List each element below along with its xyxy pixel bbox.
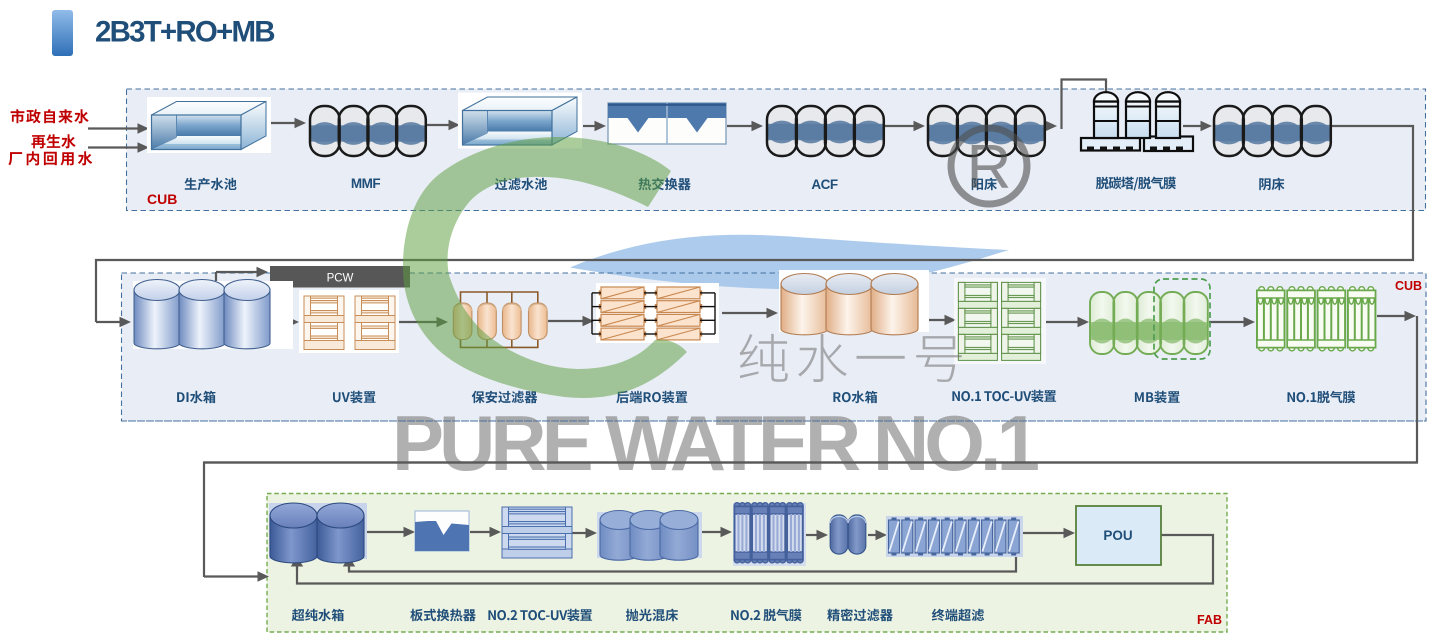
svg-text:2B3T+RO+MB: 2B3T+RO+MB: [95, 16, 274, 49]
svg-text:PURE WATER NO.1: PURE WATER NO.1: [392, 399, 1039, 487]
svg-text:R: R: [967, 133, 1012, 202]
svg-text:MMF: MMF: [351, 176, 380, 191]
svg-text:CUB: CUB: [147, 191, 177, 207]
svg-text:ACF: ACF: [811, 177, 837, 192]
svg-text:POU: POU: [1103, 528, 1132, 543]
svg-text:CUB: CUB: [1395, 279, 1422, 293]
svg-text:PCW: PCW: [327, 273, 354, 285]
svg-text:FAB: FAB: [1197, 613, 1222, 627]
